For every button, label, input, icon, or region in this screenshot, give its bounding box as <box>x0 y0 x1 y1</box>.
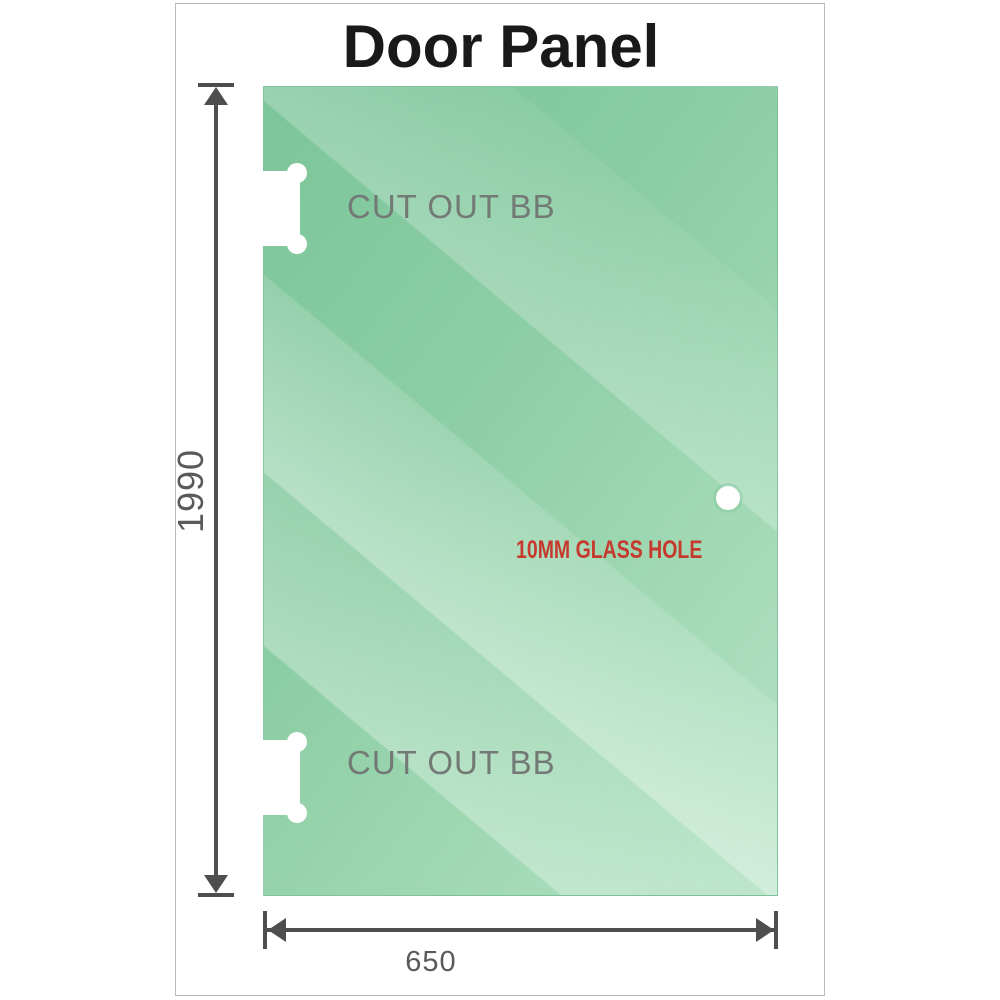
door-panel-diagram: Door Panel CUT OUT BB CUT OUT BB 10MM GL… <box>0 0 1000 1000</box>
hinge-cutout-bottom <box>263 737 311 823</box>
dimension-tick-right <box>774 911 778 949</box>
cutout-corner-relief-bottom <box>287 803 307 823</box>
width-dimension-label: 650 <box>405 946 456 979</box>
cutout-corner-relief-top <box>287 732 307 752</box>
glass-hole <box>716 486 740 510</box>
height-dimension-label: 1990 <box>170 449 212 533</box>
dimension-line-horizontal <box>267 928 775 932</box>
arrow-down-icon <box>204 875 228 893</box>
dimension-line-vertical <box>214 99 218 885</box>
arrow-right-icon <box>756 918 774 942</box>
hinge-cutout-top <box>263 168 311 254</box>
cutout-corner-relief-top <box>287 163 307 183</box>
cutout-label-bottom: CUT OUT BB <box>347 746 556 780</box>
dimension-tick-bottom <box>198 893 234 897</box>
glass-hole-label: 10MM GLASS HOLE <box>516 536 702 565</box>
cutout-label-top: CUT OUT BB <box>347 190 556 224</box>
cutout-corner-relief-bottom <box>287 234 307 254</box>
page-title: Door Panel <box>175 12 827 81</box>
